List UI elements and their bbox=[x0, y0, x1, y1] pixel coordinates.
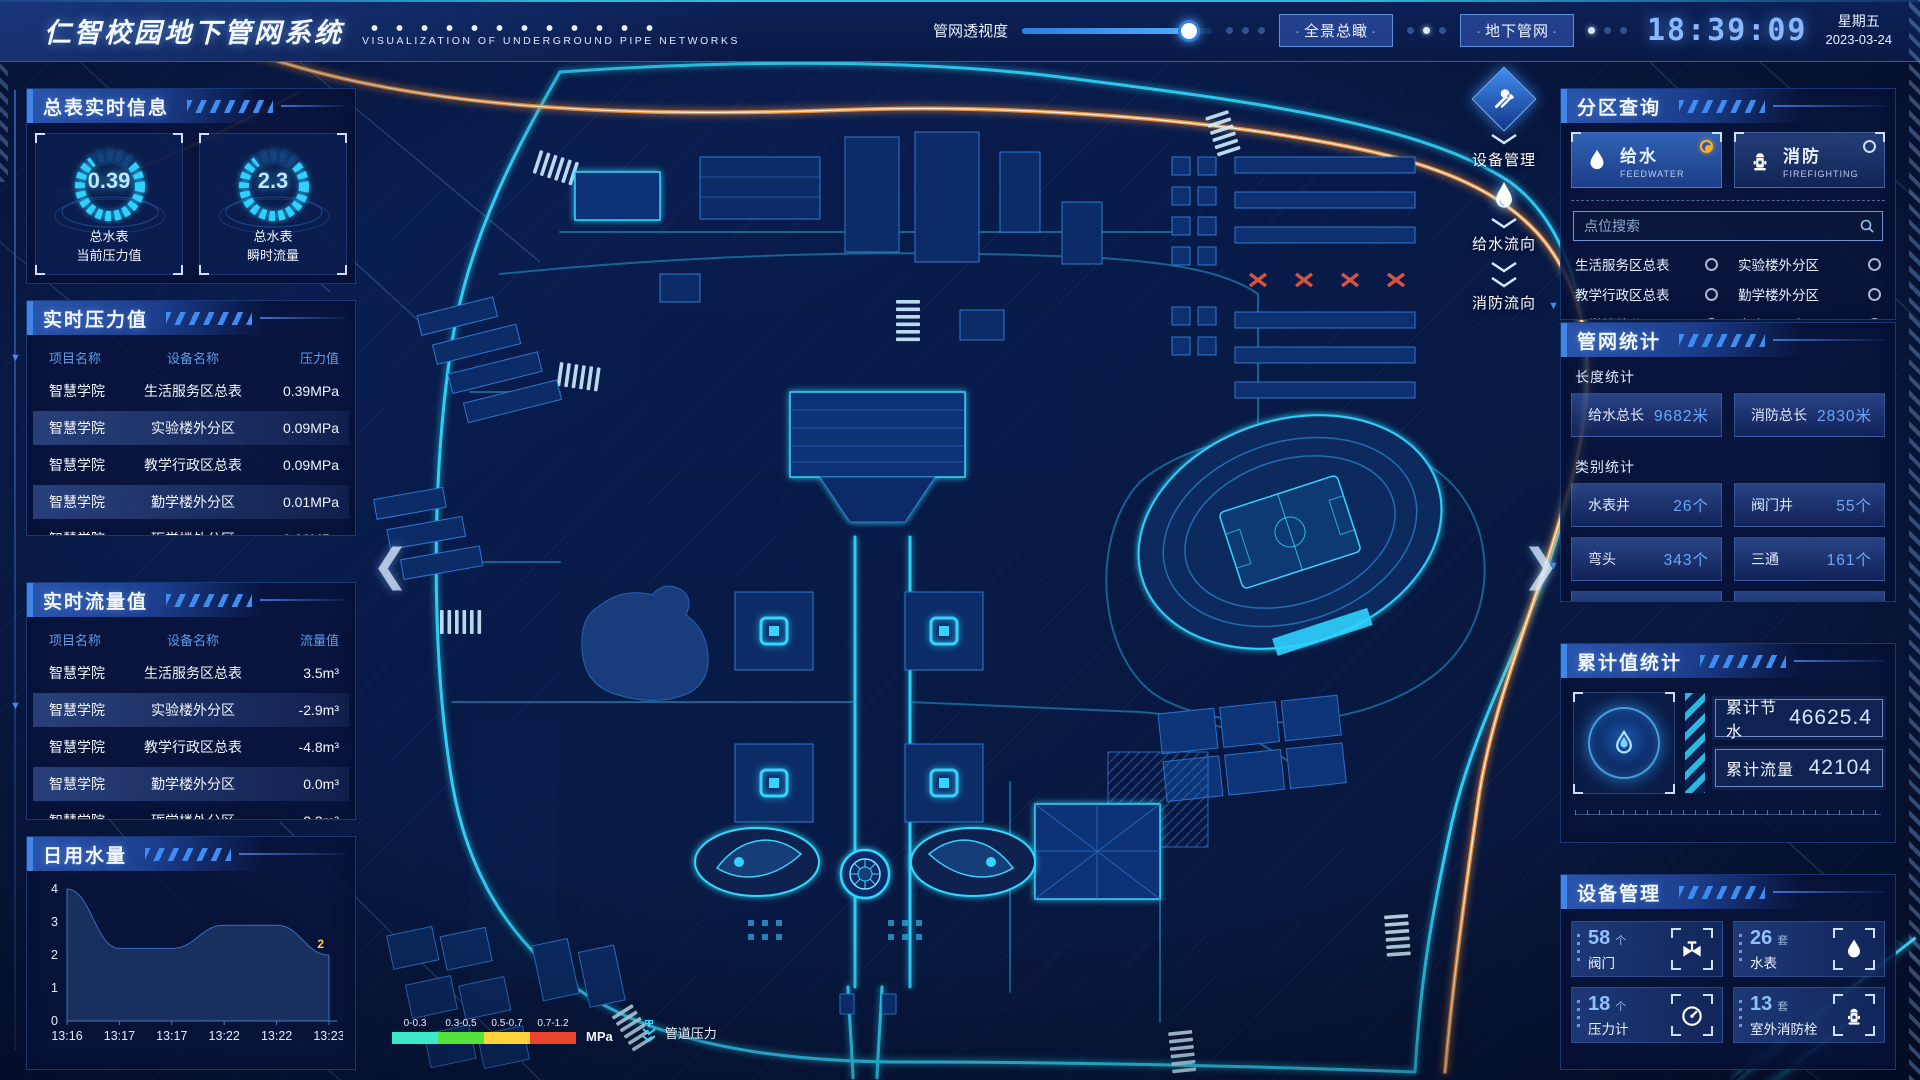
chevron-down-icon bbox=[1490, 218, 1518, 229]
underground-pipes-button[interactable]: 地下管网 bbox=[1460, 14, 1574, 47]
panorama-button[interactable]: 全景总瞰 bbox=[1279, 14, 1393, 47]
radio-selected-icon[interactable] bbox=[1700, 140, 1713, 153]
device-card-pressure-gauge[interactable]: 18个 压力计 bbox=[1571, 987, 1723, 1043]
table-header-row: 项目名称设备名称压力值 bbox=[33, 343, 349, 371]
zone-item[interactable]: 勤学楼外分区 bbox=[1738, 279, 1881, 309]
svg-text:13:17: 13:17 bbox=[156, 1029, 187, 1043]
cumulative-saved-row: 累计节水 46625.4 bbox=[1715, 699, 1883, 737]
zone-item[interactable]: 实验楼外分区 bbox=[1738, 249, 1881, 279]
hydrant-icon bbox=[1747, 147, 1773, 173]
svg-text:2: 2 bbox=[51, 948, 58, 962]
stripes-decoration bbox=[145, 848, 231, 861]
triangle-marker-icon: ▼ bbox=[10, 700, 21, 712]
transparency-slider[interactable] bbox=[1022, 20, 1212, 42]
hazard-stripes-decoration bbox=[1685, 693, 1705, 793]
gauge-value: 0.39 bbox=[36, 168, 182, 194]
stripes-decoration bbox=[1679, 334, 1765, 347]
radio-icon[interactable] bbox=[1705, 258, 1718, 271]
daily-water-chart: 0123413:1613:1713:1713:2213:2213:232 bbox=[37, 877, 343, 1053]
tab-firefighting[interactable]: 消防FIREFIGHTING bbox=[1734, 132, 1885, 188]
hydrant-icon bbox=[1842, 1003, 1866, 1027]
section-title: 分区查询 bbox=[1561, 93, 1661, 120]
decorative-dots bbox=[362, 24, 662, 32]
section-title: 实时流量值 bbox=[27, 587, 148, 614]
svg-text:0: 0 bbox=[51, 1014, 58, 1028]
gauge-flow: 2.3 总水表瞬时流量 bbox=[199, 133, 347, 275]
ruler-decoration bbox=[1575, 810, 1881, 815]
category-stats-label: 类别统计 bbox=[1561, 447, 1895, 483]
stripes-decoration bbox=[1679, 100, 1765, 113]
pipe-pressure-label: 管道压力 bbox=[665, 1023, 717, 1042]
stripes-decoration bbox=[1679, 886, 1765, 899]
top-header: 仁智校园地下管网系统 VISUALIZATION OF UNDERGROUND … bbox=[0, 0, 1920, 62]
pressure-gauge-icon bbox=[1679, 1002, 1705, 1028]
pipe-pressure-icon bbox=[639, 1020, 659, 1044]
svg-text:4: 4 bbox=[51, 882, 58, 896]
radio-unselected-icon[interactable] bbox=[1863, 140, 1876, 153]
device-card-valve[interactable]: 58个 阀门 bbox=[1571, 921, 1723, 977]
triangle-marker-icon: ▼ bbox=[10, 352, 21, 364]
panel-daily-water: 日用水量 0123413:1613:1713:1713:2213:2213:23… bbox=[26, 836, 356, 1070]
radio-icon[interactable] bbox=[1705, 318, 1718, 321]
search-icon[interactable] bbox=[1859, 218, 1875, 234]
panel-device-mgmt: 设备管理 58个 阀门 26套 水表 18个 压力计 bbox=[1560, 874, 1896, 1070]
date-display: 星期五 2023-03-24 bbox=[1826, 12, 1893, 48]
decorative-dots bbox=[1226, 27, 1265, 34]
legend-range: 0.3-0.5 bbox=[438, 1018, 484, 1044]
gauge-label: 总水表瞬时流量 bbox=[200, 228, 346, 266]
device-mgmt-map-button[interactable]: 设备管理 bbox=[1472, 70, 1536, 176]
edge-stripes-decoration bbox=[1909, 0, 1920, 1080]
zone-item[interactable]: 生活服务区总表 bbox=[1575, 249, 1718, 279]
chevron-down-icon bbox=[1490, 262, 1518, 273]
feedwater-flow-map-button[interactable]: 给水流向 bbox=[1472, 176, 1536, 260]
water-drop-icon bbox=[1489, 180, 1519, 214]
table-header-row: 项目名称设备名称流量值 bbox=[33, 625, 349, 653]
svg-text:2: 2 bbox=[317, 937, 324, 951]
valve-icon bbox=[1679, 936, 1705, 962]
panel-pipe-stats: 管网统计 长度统计 给水总长9682米消防总长2830米 类别统计 水表井26个… bbox=[1560, 322, 1896, 602]
zone-item[interactable]: 宿舍区泵房 bbox=[1738, 309, 1881, 320]
water-meter-icon bbox=[1842, 937, 1866, 961]
section-title: 实时压力值 bbox=[27, 305, 148, 332]
section-title: 日用水量 bbox=[27, 841, 127, 868]
clock: 18:39:09 bbox=[1647, 13, 1808, 48]
tools-icon bbox=[1471, 66, 1536, 131]
panel-cumulative: 累计值统计 累计节水 46625.4 累计流量 42104 bbox=[1560, 643, 1896, 843]
dashed-divider bbox=[1571, 200, 1885, 201]
zone-point-list: 生活服务区总表实验楼外分区教学行政区总表勤学楼外分区砺学楼外分区宿舍区泵房 bbox=[1561, 241, 1895, 320]
table-row[interactable]: 智慧学院勤学楼外分区0.01MPa bbox=[33, 485, 349, 519]
radio-icon[interactable] bbox=[1868, 258, 1881, 271]
section-title: 总表实时信息 bbox=[27, 93, 169, 120]
svg-text:13:22: 13:22 bbox=[209, 1029, 240, 1043]
water-emblem-card bbox=[1573, 692, 1675, 794]
stripes-decoration bbox=[166, 594, 252, 607]
radio-icon[interactable] bbox=[1705, 288, 1718, 301]
transparency-slider-label: 管网透视度 bbox=[933, 20, 1008, 41]
app-subtitle: VISUALIZATION OF UNDERGROUND PIPE NETWOR… bbox=[362, 35, 740, 47]
table-row[interactable]: 智慧学院生活服务区总表0.39MPa bbox=[33, 374, 349, 408]
device-card-water-meter[interactable]: 26套 水表 bbox=[1733, 921, 1885, 977]
stat-box: 阀门井55个 bbox=[1734, 483, 1885, 527]
pressure-table: 项目名称设备名称压力值智慧学院生活服务区总表0.39MPa智慧学院实验楼外分区0… bbox=[27, 335, 355, 536]
table-row[interactable]: 智慧学院教学行政区总表-4.8m³ bbox=[33, 730, 349, 764]
table-row[interactable]: 智慧学院生活服务区总表3.5m³ bbox=[33, 656, 349, 690]
decorative-dots bbox=[1588, 27, 1627, 34]
chevron-down-icon bbox=[1490, 134, 1518, 145]
radio-icon[interactable] bbox=[1868, 288, 1881, 301]
zone-item[interactable]: 教学行政区总表 bbox=[1575, 279, 1718, 309]
svg-text:1: 1 bbox=[51, 981, 58, 995]
panel-meter-realtime: 总表实时信息 0.39 总水表当前压力值 2.3 bbox=[26, 88, 356, 284]
device-card-hydrant[interactable]: 13套 室外消防栓 bbox=[1733, 987, 1885, 1043]
stripes-decoration bbox=[187, 100, 273, 113]
stat-box: 弯头343个 bbox=[1571, 537, 1722, 581]
panel-realtime-pressure: 实时压力值 项目名称设备名称压力值智慧学院生活服务区总表0.39MPa智慧学院实… bbox=[26, 300, 356, 536]
triangle-marker-icon: ▼ bbox=[1548, 560, 1559, 572]
zone-item[interactable]: 砺学楼外分区 bbox=[1575, 309, 1718, 320]
table-row[interactable]: 智慧学院实验楼外分区0.09MPa bbox=[33, 411, 349, 445]
app-title: 仁智校园地下管网系统 bbox=[44, 11, 344, 50]
tab-feedwater[interactable]: 给水FEEDWATER bbox=[1571, 132, 1722, 188]
svg-text:3: 3 bbox=[51, 915, 58, 929]
pressure-legend: 0-0.30.3-0.50.5-0.70.7-1.2 MPa 管道压力 bbox=[392, 1018, 717, 1044]
water-drop-emblem-icon bbox=[1588, 707, 1660, 779]
decorative-dots bbox=[1407, 27, 1446, 34]
legend-range: 0-0.3 bbox=[392, 1018, 438, 1044]
section-title: 设备管理 bbox=[1561, 879, 1661, 906]
slider-handle-icon[interactable] bbox=[1178, 20, 1200, 42]
title-block: 仁智校园地下管网系统 VISUALIZATION OF UNDERGROUND … bbox=[0, 0, 740, 61]
stripes-decoration bbox=[166, 312, 252, 325]
svg-text:13:17: 13:17 bbox=[104, 1029, 135, 1043]
svg-text:13:22: 13:22 bbox=[261, 1029, 292, 1043]
chevron-down-icon bbox=[1490, 277, 1518, 288]
gauge-label: 总水表当前压力值 bbox=[36, 228, 182, 266]
table-row[interactable]: 智慧学院砺学楼外分区0.00MPa bbox=[33, 522, 349, 536]
table-row[interactable]: 智慧学院教学行政区总表0.09MPa bbox=[33, 448, 349, 482]
pan-left-arrow[interactable]: ❮ bbox=[372, 540, 409, 591]
stat-row-clipped bbox=[1561, 591, 1895, 602]
flow-table: 项目名称设备名称流量值智慧学院生活服务区总表3.5m³智慧学院实验楼外分区-2.… bbox=[27, 617, 355, 820]
svg-text:13:23: 13:23 bbox=[313, 1029, 343, 1043]
legend-unit: MPa bbox=[586, 1029, 613, 1044]
legend-range: 0.7-1.2 bbox=[530, 1018, 576, 1044]
radio-icon[interactable] bbox=[1868, 318, 1881, 321]
table-row[interactable]: 智慧学院实验楼外分区-2.9m³ bbox=[33, 693, 349, 727]
gauge-pressure: 0.39 总水表当前压力值 bbox=[35, 133, 183, 275]
stat-box: 消防总长2830米 bbox=[1734, 393, 1885, 437]
table-row[interactable]: 智慧学院砺学楼外分区-2.3m³ bbox=[33, 804, 349, 820]
section-title: 累计值统计 bbox=[1561, 648, 1682, 675]
cumulative-flow-row: 累计流量 42104 bbox=[1715, 749, 1883, 787]
stat-box: 三通161个 bbox=[1734, 537, 1885, 581]
rail-decoration bbox=[14, 90, 16, 1050]
legend-range: 0.5-0.7 bbox=[484, 1018, 530, 1044]
panel-realtime-flow: 实时流量值 项目名称设备名称流量值智慧学院生活服务区总表3.5m³智慧学院实验楼… bbox=[26, 582, 356, 820]
stat-box: 给水总长9682米 bbox=[1571, 393, 1722, 437]
edge-stripes-decoration bbox=[0, 62, 8, 182]
triangle-marker-icon: ▼ bbox=[1548, 300, 1559, 312]
stat-box: 水表井26个 bbox=[1571, 483, 1722, 527]
panel-zone-query: 分区查询 给水FEEDWATER 消防FIREFIGHTING bbox=[1560, 88, 1896, 320]
stripes-decoration bbox=[1700, 655, 1786, 668]
point-search-input[interactable] bbox=[1573, 211, 1883, 241]
firefighting-flow-map-button[interactable]: 消防流向 bbox=[1472, 260, 1536, 319]
length-stats-label: 长度统计 bbox=[1561, 357, 1895, 393]
table-row[interactable]: 智慧学院勤学楼外分区0.0m³ bbox=[33, 767, 349, 801]
gauge-value: 2.3 bbox=[200, 168, 346, 194]
map-tool-column: 设备管理 给水流向 消防流向 bbox=[1462, 70, 1546, 319]
section-title: 管网统计 bbox=[1561, 327, 1661, 354]
water-drop-icon bbox=[1584, 147, 1610, 173]
svg-text:13:16: 13:16 bbox=[51, 1029, 82, 1043]
